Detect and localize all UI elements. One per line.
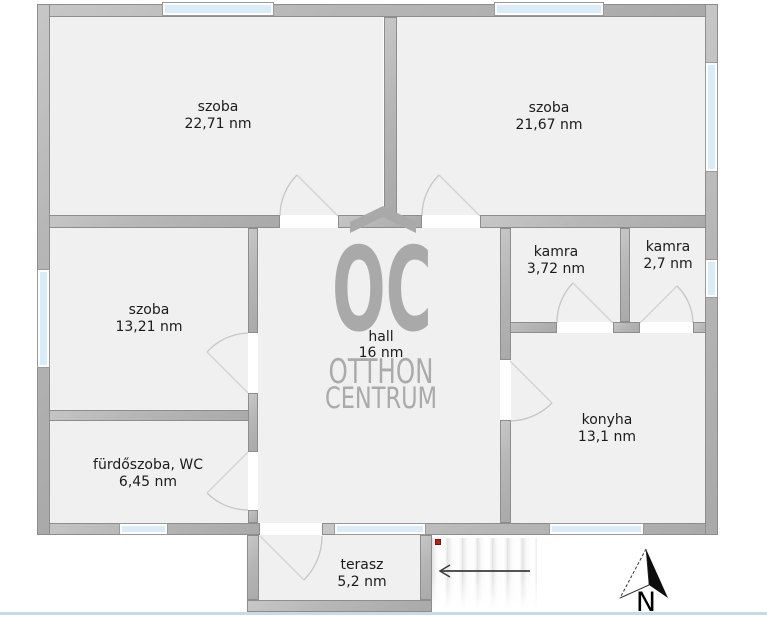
window-right-szoba xyxy=(706,63,717,171)
room-name: hall xyxy=(281,330,481,346)
wall-mid-c xyxy=(480,215,718,228)
wall-outer-top xyxy=(37,4,718,17)
window-bottom-hall xyxy=(335,524,425,534)
label-hall: hall 16 nm xyxy=(281,330,481,361)
label-terasz: terasz 5,2 nm xyxy=(262,557,462,591)
room-name: konyha xyxy=(507,412,707,429)
entrance-marker xyxy=(435,539,441,545)
room-name: szoba xyxy=(49,302,249,319)
room-area: 13,1 nm xyxy=(507,429,707,446)
north-arrow-icon: N xyxy=(620,549,668,618)
wall-terrace-left xyxy=(247,535,259,600)
room-area: 13,21 nm xyxy=(49,319,249,336)
room-area: 2,7 nm xyxy=(568,256,767,273)
label-kamra-2: kamra 2,7 nm xyxy=(568,239,767,273)
label-konyha: konyha 13,1 nm xyxy=(507,412,707,446)
wall-mid-b xyxy=(338,215,422,228)
room-area: 6,45 nm xyxy=(48,474,248,491)
room-name: terasz xyxy=(262,557,462,574)
room-area: 16 nm xyxy=(281,346,481,362)
label-szoba-topleft: szoba 22,71 nm xyxy=(118,99,318,133)
wall-hall-left-a xyxy=(248,228,258,333)
floor-plan: N OC OTTHON CENTRUM szoba 22,7 xyxy=(0,0,767,618)
label-szoba-topright: szoba 21,67 nm xyxy=(449,100,649,134)
window-bottom-kitchen xyxy=(550,524,643,534)
room-name: kamra xyxy=(568,239,767,256)
wall-hall-left-b xyxy=(248,393,258,452)
room-name: szoba xyxy=(118,99,318,116)
room-area: 5,2 nm xyxy=(262,574,462,591)
room-name: fürdőszoba, WC xyxy=(48,457,248,474)
wall-bathroom-top xyxy=(37,410,258,421)
wall-mid-a xyxy=(37,215,280,228)
room-area: 22,71 nm xyxy=(118,116,318,133)
bottom-border-line xyxy=(0,612,767,615)
window-top-left xyxy=(163,3,273,15)
label-szoba-midleft: szoba 13,21 nm xyxy=(49,302,249,336)
window-left-szoba xyxy=(38,270,49,367)
wall-between-top-rooms xyxy=(384,17,397,215)
wall-kamra-bottom-b xyxy=(613,322,640,333)
wall-terrace-bottom xyxy=(247,600,432,612)
label-furdoszoba: fürdőszoba, WC 6,45 nm xyxy=(48,457,248,491)
window-top-right xyxy=(495,3,603,15)
wall-hall-left-c xyxy=(248,510,258,523)
window-bottom-bathroom xyxy=(120,524,167,534)
room-name: szoba xyxy=(449,100,649,117)
room-area: 21,67 nm xyxy=(449,117,649,134)
